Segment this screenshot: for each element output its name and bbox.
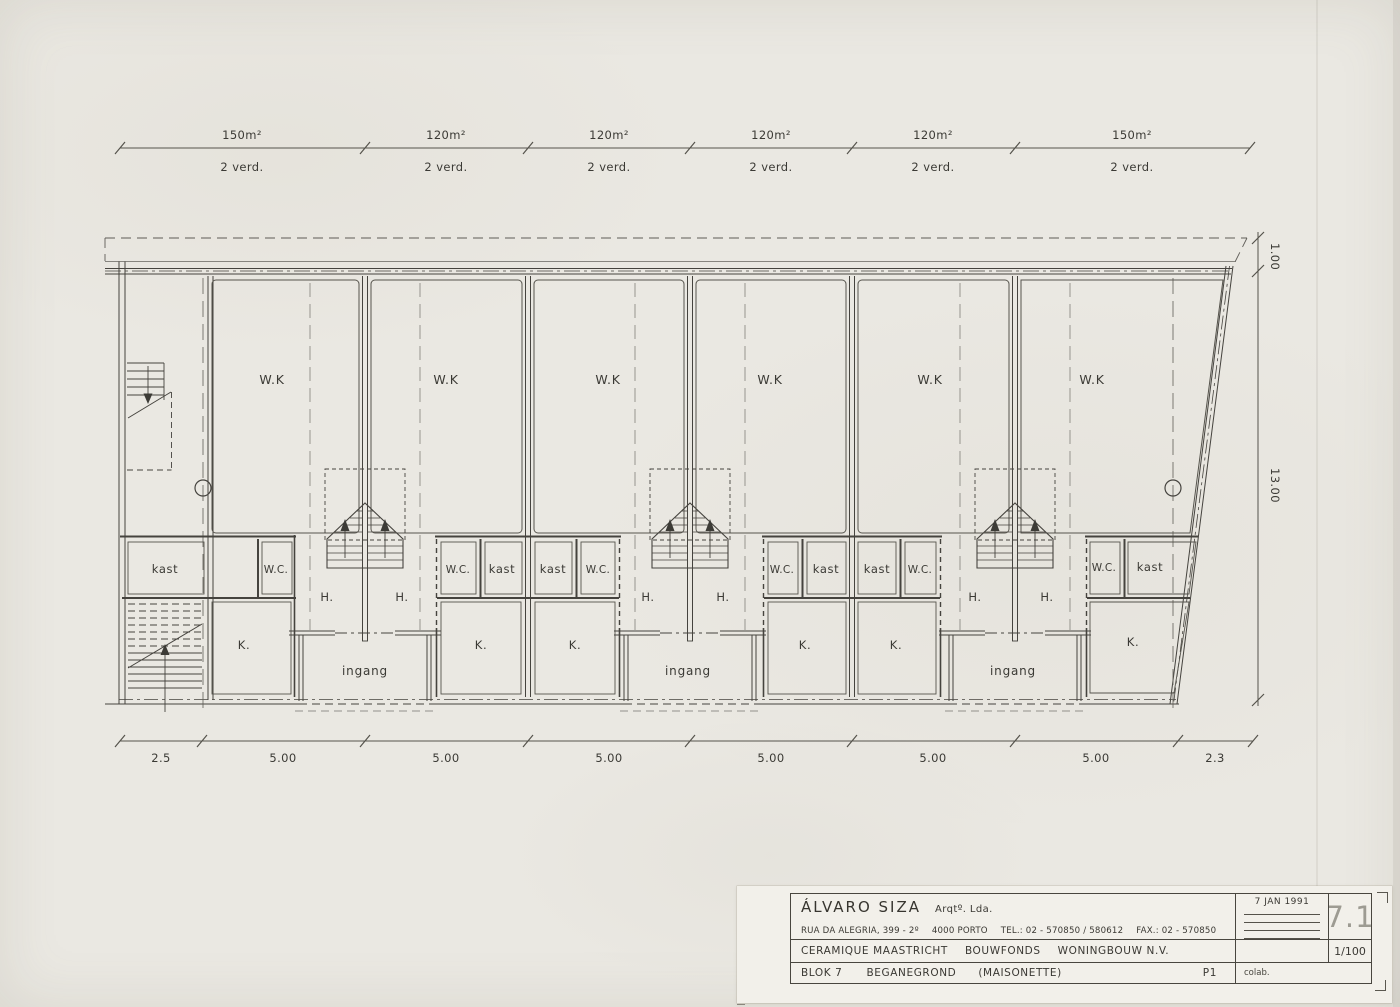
project-client: CERAMIQUE MAASTRICHT [801, 945, 948, 957]
project-company: WONINGBOUW N.V. [1058, 945, 1170, 957]
crop-mark [1377, 892, 1388, 903]
toilet-label: W.C. [770, 564, 794, 576]
kitchen-label: K. [1127, 635, 1139, 649]
hall-label: H. [968, 590, 981, 604]
project-developer: BOUWFONDS [965, 945, 1041, 957]
bottom-dimension-labels: 2.5 5.00 5.00 5.00 5.00 5.00 5.00 2.3 [151, 751, 1225, 765]
area-label: 120m² [589, 128, 629, 142]
service-clusters [120, 535, 1198, 697]
dim-label: 5.00 [595, 751, 622, 765]
hall-label: H. [1040, 590, 1053, 604]
dim-label: 5.00 [757, 751, 784, 765]
architect-cell: ÁLVARO SIZA Arqtº. Lda. RUA DA ALEGRIA, … [791, 894, 1235, 939]
toilet-label: W.C. [446, 564, 470, 576]
closet-label: kast [864, 562, 890, 576]
date-cell: 7 JAN 1991 [1235, 894, 1328, 939]
entrance-label: ingang [342, 664, 388, 678]
stamp-rule [1244, 931, 1320, 939]
architect-address: RUA DA ALEGRIA, 399 - 2º [801, 926, 919, 936]
dim-label: 2.5 [151, 751, 171, 765]
closet-label: kast [540, 562, 566, 576]
living-room-label: W.K [917, 372, 942, 387]
scale-cell: 1/100 [1328, 939, 1371, 962]
living-room-label: W.K [757, 372, 782, 387]
party-walls [363, 276, 1018, 697]
stamp-rule [1244, 915, 1320, 923]
floors-label: 2 verd. [424, 160, 467, 174]
right-dim-offset: 1.00 [1268, 243, 1282, 270]
unit1-lower-stair [128, 604, 202, 712]
drawing-scale: 1/100 [1334, 945, 1366, 958]
kitchen-label: K. [569, 638, 581, 652]
entrance-label: ingang [990, 664, 1036, 678]
living-room-label: W.K [1079, 372, 1104, 387]
sheet-number: 7.1 [1328, 900, 1371, 934]
stamp-rule [1244, 907, 1320, 915]
area-label: 120m² [426, 128, 466, 142]
building-outline [105, 238, 1247, 704]
drawing-date: 7 JAN 1991 [1255, 897, 1310, 907]
stamp-rule [1244, 923, 1320, 931]
floor-plan-drawing: 150m² 120m² 120m² 120m² 120m² 150m² 2 ve… [0, 0, 1400, 1007]
drawing-sheet: 150m² 120m² 120m² 120m² 120m² 150m² 2 ve… [0, 0, 1400, 1007]
collaborator-label: colab. [1244, 968, 1270, 978]
hall-label: H. [395, 590, 408, 604]
hall-label: H. [641, 590, 654, 604]
dim-label: 2.3 [1205, 751, 1225, 765]
hall-label: H. [320, 590, 333, 604]
empty-cell [1235, 939, 1328, 962]
floors-label: 2 verd. [587, 160, 630, 174]
closet-label: kast [152, 562, 178, 576]
architect-fax: FAX.: 02 - 570850 [1136, 926, 1216, 936]
phase-label: P1 [1203, 967, 1217, 979]
drawing-title-cell: BLOK 7 BEGANEGROND (MAISONETTE) P1 [791, 962, 1235, 983]
sheet-number-cell: 7.1 [1328, 894, 1371, 939]
dim-label: 5.00 [919, 751, 946, 765]
dim-label: 5.00 [269, 751, 296, 765]
floors-label: 2 verd. [220, 160, 263, 174]
living-room-label: W.K [595, 372, 620, 387]
unit1-upper-stair [127, 363, 172, 470]
toilet-label: W.C. [586, 564, 610, 576]
living-room-label: W.K [433, 372, 458, 387]
kitchen-label: K. [890, 638, 902, 652]
floor-name: BEGANEGROND [866, 967, 956, 979]
hall-label: H. [716, 590, 729, 604]
floors-label: 2 verd. [749, 160, 792, 174]
architect-tel: TEL.: 02 - 570850 / 580612 [1001, 926, 1124, 936]
dim-label: 5.00 [1082, 751, 1109, 765]
toilet-label: W.C. [264, 564, 288, 576]
closet-label: kast [489, 562, 515, 576]
closet-label: kast [1137, 560, 1163, 574]
area-label: 150m² [222, 128, 262, 142]
floors-label: 2 verd. [1110, 160, 1153, 174]
area-label: 120m² [913, 128, 953, 142]
title-block-grid: ÁLVARO SIZA Arqtº. Lda. RUA DA ALEGRIA, … [790, 893, 1372, 984]
shared-stair [325, 469, 1055, 568]
right-dim-depth: 13.00 [1268, 468, 1282, 503]
right-dimension-line [1252, 232, 1264, 706]
floors-label: 2 verd. [911, 160, 954, 174]
bottom-dimension-line [115, 735, 1258, 747]
toilet-label: W.C. [1092, 562, 1116, 574]
kitchen-label: K. [799, 638, 811, 652]
area-label: 120m² [751, 128, 791, 142]
block-number: BLOK 7 [801, 967, 842, 979]
project-cell: CERAMIQUE MAASTRICHT BOUWFONDS WONINGBOU… [791, 939, 1235, 962]
collaborator-cell: colab. [1235, 962, 1371, 983]
architect-suffix: Arqtº. Lda. [935, 904, 993, 915]
area-label: 150m² [1112, 128, 1152, 142]
title-block: ÁLVARO SIZA Arqtº. Lda. RUA DA ALEGRIA, … [737, 886, 1392, 1003]
toilet-label: W.C. [908, 564, 932, 576]
top-dimension-line [115, 142, 1255, 154]
kitchen-label: K. [238, 638, 250, 652]
dim-label: 5.00 [432, 751, 459, 765]
closet-label: kast [813, 562, 839, 576]
architect-city: 4000 PORTO [932, 926, 988, 936]
entrance-label: ingang [665, 664, 711, 678]
living-room-label: W.K [259, 372, 284, 387]
architect-name: ÁLVARO SIZA [801, 898, 921, 916]
crop-mark [1375, 980, 1386, 991]
living-room-outlines [212, 280, 1223, 533]
kitchen-label: K. [475, 638, 487, 652]
crop-mark [737, 994, 745, 1005]
dwelling-type: (MAISONETTE) [978, 967, 1061, 979]
paper-artifacts [1317, 0, 1400, 1007]
